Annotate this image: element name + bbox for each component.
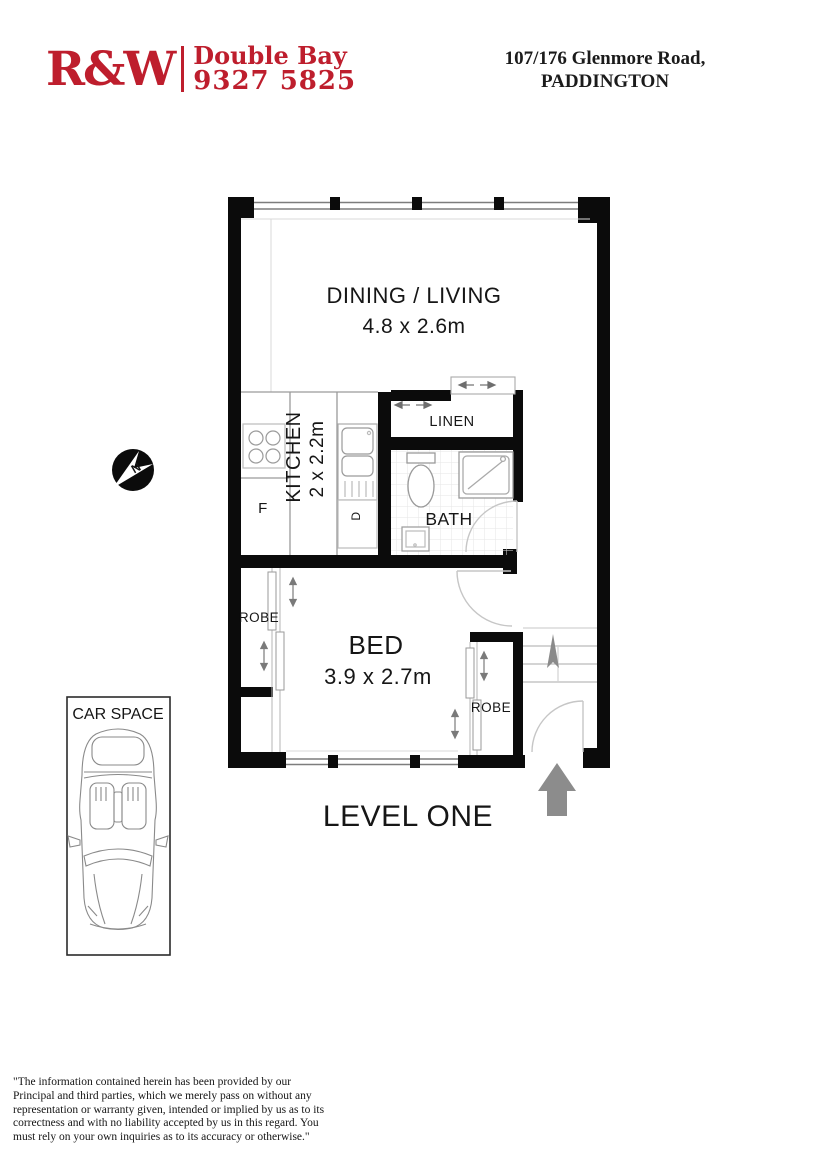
north-compass-icon: N (112, 449, 154, 491)
dining-label: DINING / LIVING (327, 283, 502, 308)
bath-label: BATH (425, 509, 472, 529)
sink-icon (338, 424, 377, 500)
dishwasher-box (338, 500, 377, 548)
car-space: CAR SPACE (67, 697, 170, 955)
dishwasher-label: D (349, 511, 363, 520)
robe-left-doors (261, 568, 296, 752)
bed-dims: 3.9 x 2.7m (324, 664, 432, 689)
floorplan-page: R&W Double Bay 9327 5825 107/176 Glenmor… (0, 0, 813, 1150)
car-space-label: CAR SPACE (72, 706, 163, 723)
cooktop-icon (243, 424, 285, 468)
kitchen-dims: 2 x 2.2m (307, 421, 328, 498)
robe-left-label: ROBE (239, 610, 279, 625)
stairs-up-arrow-icon (547, 634, 559, 668)
entry-arrow-icon (538, 763, 576, 816)
bed-label: BED (349, 630, 404, 660)
robe-right-doors (452, 642, 487, 755)
dining-dims: 4.8 x 2.6m (362, 315, 465, 338)
floorplan-drawing: N DINING / LIVING 4.8 x 2.6m KITCHEN 2 x… (0, 0, 813, 1150)
kitchen-label: KITCHEN (283, 411, 305, 502)
linen-label: LINEN (429, 414, 474, 430)
robe-right-label: ROBE (471, 700, 511, 715)
disclaimer-text: "The information contained herein has be… (13, 1076, 333, 1145)
basin-icon (402, 527, 429, 551)
toilet-icon (407, 453, 435, 507)
fridge-label: F (258, 500, 268, 517)
shower-icon (459, 452, 513, 498)
stairs (523, 628, 597, 682)
level-label: LEVEL ONE (323, 800, 493, 833)
